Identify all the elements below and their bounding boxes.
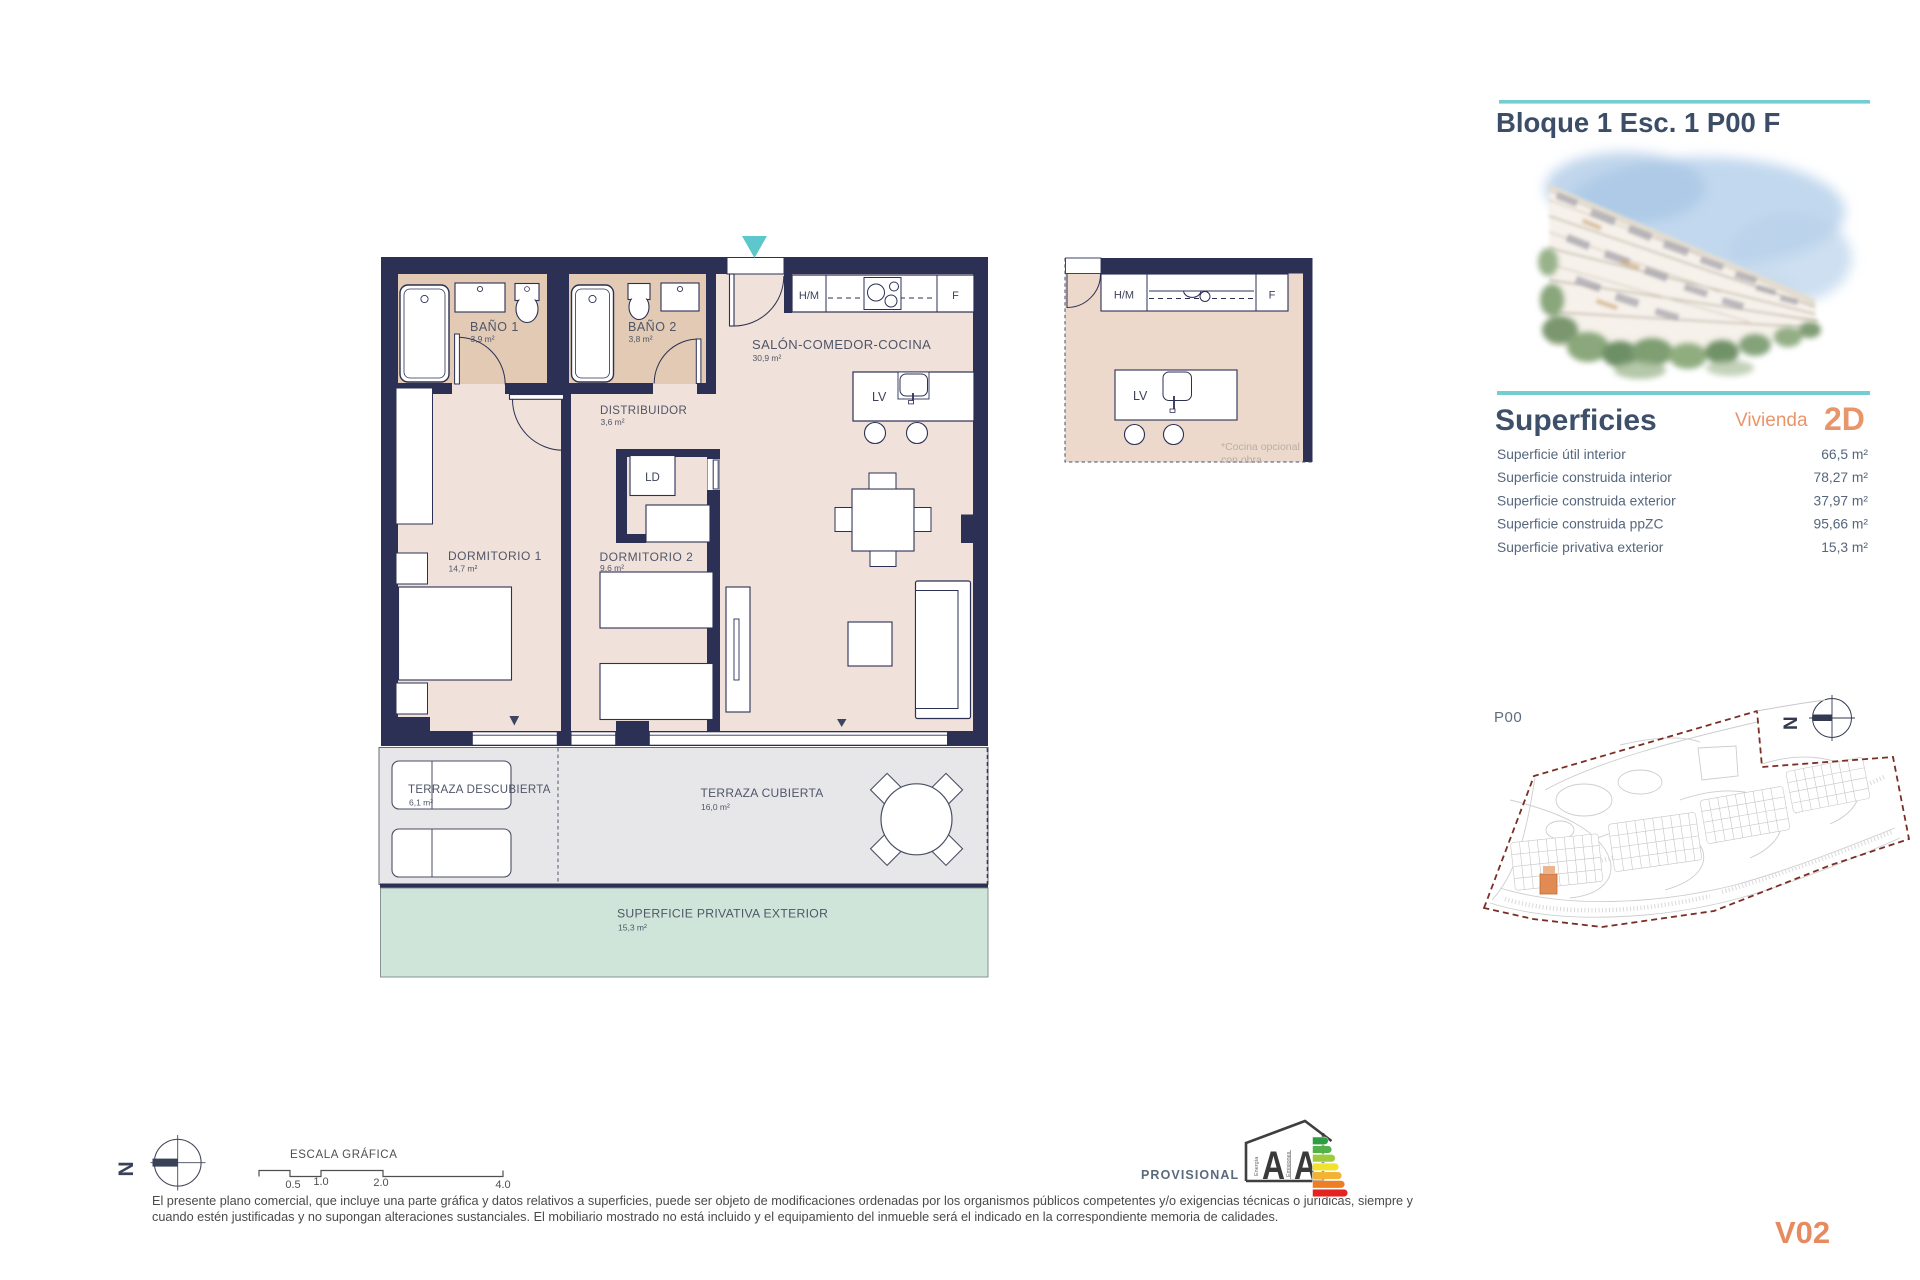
svg-text:Bloque 1 Esc. 1 P00 F: Bloque 1 Esc. 1 P00 F [1496, 107, 1780, 138]
svg-text:PROVISIONAL: PROVISIONAL [1141, 1168, 1239, 1182]
svg-text:F: F [952, 290, 959, 302]
svg-text:95,66 m²: 95,66 m² [1814, 517, 1869, 532]
svg-text:Energía: Energía [1254, 1156, 1260, 1176]
svg-text:SUPERFICIE PRIVATIVA EXTERIOR: SUPERFICIE PRIVATIVA EXTERIOR [617, 907, 828, 921]
svg-text:6,1 m²: 6,1 m² [409, 798, 433, 808]
svg-text:LV: LV [1133, 389, 1148, 403]
svg-text:9,6 m²: 9,6 m² [600, 563, 624, 573]
svg-text:66,5 m²: 66,5 m² [1821, 447, 1868, 462]
svg-text:15,3 m²: 15,3 m² [1821, 540, 1868, 555]
svg-text:16,0 m²: 16,0 m² [701, 802, 730, 812]
svg-text:LD: LD [645, 472, 660, 484]
svg-text:DORMITORIO 2: DORMITORIO 2 [600, 550, 694, 564]
svg-text:4.0: 4.0 [495, 1179, 510, 1191]
svg-text:3,9 m²: 3,9 m² [471, 334, 495, 344]
svg-text:Superficie construida ppZC: Superficie construida ppZC [1497, 517, 1663, 532]
svg-text:Superficies: Superficies [1495, 404, 1657, 437]
svg-text:Superficie construida interior: Superficie construida interior [1497, 470, 1672, 485]
svg-text:V02: V02 [1775, 1215, 1830, 1250]
svg-text:78,27 m²: 78,27 m² [1814, 470, 1869, 485]
svg-text:P00: P00 [1494, 709, 1522, 726]
svg-text:37,97 m²: 37,97 m² [1814, 493, 1869, 508]
svg-text:Superficie privativa exterior: Superficie privativa exterior [1497, 540, 1664, 555]
svg-text:F: F [1269, 290, 1276, 302]
svg-text:con obra: con obra [1221, 454, 1262, 466]
svg-text:BAÑO 2: BAÑO 2 [628, 320, 677, 334]
svg-text:3,8 m²: 3,8 m² [629, 334, 653, 344]
svg-text:*Cocina opcional: *Cocina opcional [1221, 441, 1300, 453]
svg-text:30,9 m²: 30,9 m² [753, 353, 782, 363]
svg-text:N: N [1781, 716, 1802, 730]
svg-text:BAÑO 1: BAÑO 1 [470, 320, 519, 334]
svg-text:Superficie útil interior: Superficie útil interior [1497, 447, 1626, 462]
svg-text:DORMITORIO 1: DORMITORIO 1 [448, 549, 542, 563]
svg-text:2.0: 2.0 [373, 1177, 388, 1189]
svg-text:El presente plano comercial, q: El presente plano comercial, que incluye… [152, 1194, 1414, 1208]
svg-text:cuando estén justificadas y no: cuando estén justificadas y no supongan … [152, 1210, 1278, 1224]
svg-text:Superficie construida exterior: Superficie construida exterior [1497, 493, 1676, 508]
svg-text:TERRAZA DESCUBIERTA: TERRAZA DESCUBIERTA [408, 784, 551, 796]
svg-text:0.5: 0.5 [285, 1179, 300, 1191]
svg-text:LV: LV [872, 390, 887, 404]
svg-text:N: N [115, 1161, 138, 1176]
svg-text:2D: 2D [1824, 401, 1865, 437]
svg-text:14,7 m²: 14,7 m² [449, 564, 478, 574]
svg-text:1.0: 1.0 [313, 1176, 328, 1188]
svg-text:15,3 m²: 15,3 m² [618, 923, 647, 933]
svg-text:H/M: H/M [799, 290, 819, 302]
svg-text:Emisiones: Emisiones [1286, 1151, 1292, 1177]
svg-text:DISTRIBUIDOR: DISTRIBUIDOR [600, 405, 687, 417]
svg-text:H/M: H/M [1114, 290, 1134, 302]
svg-text:SALÓN-COMEDOR-COCINA: SALÓN-COMEDOR-COCINA [752, 337, 931, 352]
svg-text:Vivienda: Vivienda [1735, 410, 1808, 431]
svg-text:A: A [1262, 1144, 1285, 1188]
svg-text:3,6 m²: 3,6 m² [601, 417, 625, 427]
svg-text:ESCALA GRÁFICA: ESCALA GRÁFICA [290, 1148, 397, 1161]
svg-text:TERRAZA CUBIERTA: TERRAZA CUBIERTA [701, 786, 824, 800]
